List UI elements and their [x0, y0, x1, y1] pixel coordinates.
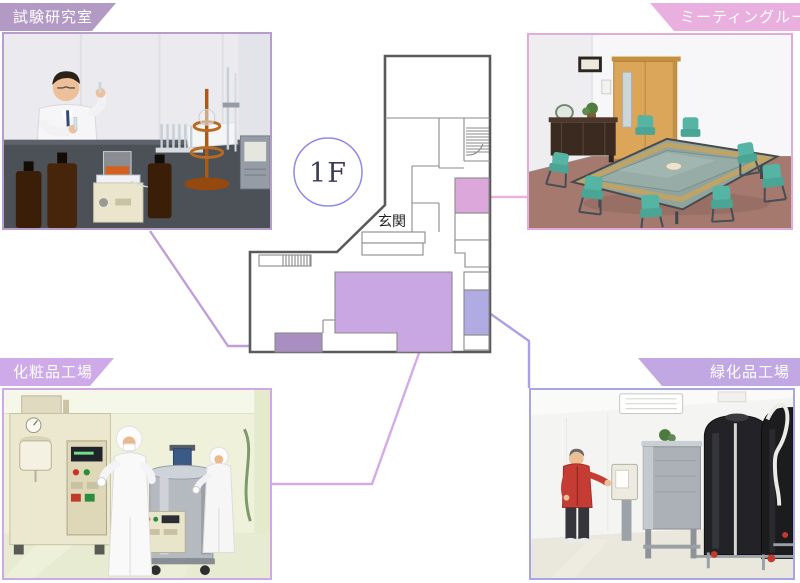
lab-machine: [240, 136, 270, 189]
intercom: [602, 80, 611, 94]
plan-room-greening: [464, 290, 489, 335]
plan-room-cosmetics: [335, 272, 452, 352]
tab-meeting-room: ミーティングルーム: [650, 3, 800, 31]
plan-room-meeting: [455, 178, 489, 213]
plan-colored-rooms: [275, 178, 489, 352]
plan-inner-walls: [259, 118, 490, 350]
meeting-room-photo: [527, 33, 793, 230]
tab-cosmetics-factory: 化粧品工場: [0, 358, 114, 386]
support-pole: [734, 423, 737, 556]
greening-factory-photo: [529, 388, 795, 580]
floor-badge: 1F: [294, 138, 362, 206]
cosmetics-factory-photo: [2, 388, 272, 580]
floor-badge-ring: [294, 138, 362, 206]
floor-guide-page: 1F 玄関 試験研究室 ミーティングルーム 化粧品工場 緑化品工場: [0, 0, 800, 583]
meeting-room-photo-scene: [529, 35, 791, 228]
tab-greening-factory: 緑化品工場: [638, 358, 800, 386]
test-lab-photo: [2, 32, 272, 230]
entrance-label: 玄関: [378, 213, 406, 230]
mixing-machine: [10, 396, 110, 555]
test-lab-photo-scene: [4, 34, 270, 228]
plan-outer-walls: [250, 56, 490, 352]
black-tanks: [704, 408, 793, 559]
connector-test-lab: [150, 231, 276, 346]
connector-greening-factory: [488, 312, 529, 388]
cosmetics-factory-photo-scene: [4, 390, 270, 578]
greening-factory-photo-scene: [531, 390, 793, 578]
connector-cosmetics-factory: [271, 353, 419, 484]
floor-badge-text: 1F: [309, 158, 347, 189]
tab-cosmetics-factory-label: 化粧品工場: [13, 363, 93, 381]
tab-greening-factory-label: 緑化品工場: [710, 363, 790, 381]
tab-meeting-room-label: ミーティングルーム: [680, 8, 800, 26]
tab-test-lab-label: 試験研究室: [13, 8, 93, 26]
tab-test-lab: 試験研究室: [0, 3, 116, 31]
plan-room-test-lab: [275, 333, 322, 352]
